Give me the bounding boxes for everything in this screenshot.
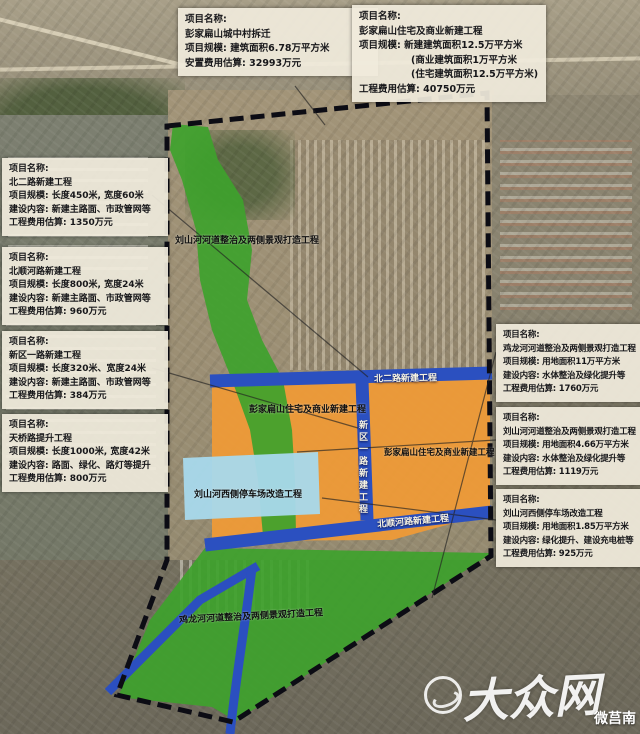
- map-label-xinquyilu-road: 新区一路新建工程: [356, 420, 369, 516]
- info-line: 项目名称:: [503, 494, 640, 508]
- info-box-jilonghe: 项目名称: 鸡龙河河道整治及两侧景观打造工程 项目规模: 用地面积11万平方米 …: [496, 324, 640, 402]
- map-label-parking: 刘山河西侧停车场改造工程: [194, 487, 302, 500]
- info-line: 项目规模: 长度1000米, 宽度42米: [9, 446, 161, 460]
- info-line: 工程费用估算: 40750万元: [359, 83, 539, 98]
- info-line: 建设内容: 水体整治及绿化提升等: [503, 370, 640, 384]
- info-line: 安置费用估算: 32993万元: [185, 57, 371, 72]
- map-label-orange-left: 彭家扁山住宅及商业新建工程: [249, 402, 366, 415]
- info-line: 北顺河路新建工程: [9, 266, 161, 280]
- blue-road-beierlu: [210, 373, 492, 381]
- planning-map-image: 项目名称: 彭家扁山城中村拆迁 项目规模: 建筑面积6.78万平方米 安置费用估…: [0, 0, 640, 734]
- map-label-beierlu-road: 北二路新建工程: [374, 370, 437, 384]
- watermark-logo-text: 大众网: [460, 658, 601, 731]
- info-box-xinquyilu: 项目名称: 新区一路新建工程 项目规模: 长度320米、宽度24米 建设内容: …: [2, 331, 168, 409]
- info-box-demolition: 项目名称: 彭家扁山城中村拆迁 项目规模: 建筑面积6.78万平方米 安置费用估…: [178, 8, 378, 76]
- info-line: 项目规模: 长度800米, 宽度24米: [9, 279, 161, 293]
- watermark-account-name: 微莒南: [594, 708, 636, 728]
- map-label-liushanhe-corridor: 刘山河河道整治及两侧景观打造工程: [175, 233, 319, 246]
- info-line: 工程费用估算: 925万元: [503, 548, 640, 562]
- info-box-newbuild: 项目名称: 彭家扁山住宅及商业新建工程 项目规模: 新建建筑面积12.5万平方米…: [352, 5, 546, 102]
- info-line: 工程费用估算: 800万元: [9, 473, 161, 487]
- info-box-liushanhe: 项目名称: 刘山河河道整治及两侧景观打造工程 项目规模: 用地面积4.66万平方…: [496, 407, 640, 485]
- info-line: 工程费用估算: 1760万元: [503, 383, 640, 397]
- info-line: 工程费用估算: 1119万元: [503, 466, 640, 480]
- map-label-orange-right: 彭家扁山住宅及商业新建工程: [384, 446, 495, 458]
- info-line: (商业建筑面积1万平方米: [359, 54, 539, 69]
- info-line: 项目规模: 用地面积11万平方米: [503, 356, 640, 370]
- info-line: 北二路新建工程: [9, 177, 161, 191]
- info-line: 工程费用估算: 384万元: [9, 390, 161, 404]
- info-box-parking: 项目名称: 刘山河西侧停车场改造工程 项目规模: 用地面积1.85万平方米 建设…: [496, 489, 640, 567]
- info-line: 鸡龙河河道整治及两侧景观打造工程: [503, 343, 640, 357]
- info-line: 建设内容: 新建主路面、市政管网等: [9, 377, 161, 391]
- info-line: 项目规模: 长度450米, 宽度60米: [9, 190, 161, 204]
- info-line: 建设内容: 路面、绿化、路灯等提升: [9, 460, 161, 474]
- info-line: 项目规模: 用地面积1.85万平方米: [503, 521, 640, 535]
- info-line: 项目名称:: [9, 419, 161, 433]
- info-line: 项目规模: 长度320米、宽度24米: [9, 363, 161, 377]
- info-line: 刘山河河道整治及两侧景观打造工程: [503, 426, 640, 440]
- info-line: 项目名称:: [503, 329, 640, 343]
- info-line: 建设内容: 新建主路面、市政管网等: [9, 293, 161, 307]
- info-line: 工程费用估算: 960万元: [9, 306, 161, 320]
- info-line: 建设内容: 新建主路面、市政管网等: [9, 204, 161, 218]
- info-line: 工程费用估算: 1350万元: [9, 217, 161, 231]
- info-line: 项目名称:: [185, 13, 371, 28]
- info-box-beishunhelu: 项目名称: 北顺河路新建工程 项目规模: 长度800米, 宽度24米 建设内容:…: [2, 247, 168, 325]
- info-box-beierlu: 项目名称: 北二路新建工程 项目规模: 长度450米, 宽度60米 建设内容: …: [2, 158, 168, 236]
- info-line: 建设内容: 绿化提升、建设充电桩等: [503, 535, 640, 549]
- info-line: 项目规模: 用地面积4.66万平方米: [503, 439, 640, 453]
- info-line: 项目名称:: [359, 10, 539, 25]
- info-line: 项目名称:: [9, 252, 161, 266]
- info-line: (住宅建筑面积12.5万平方米): [359, 68, 539, 83]
- watermark-logo-icon: [424, 676, 462, 714]
- info-line: 彭家扁山住宅及商业新建工程: [359, 25, 539, 40]
- info-line: 项目名称:: [503, 412, 640, 426]
- info-line: 项目规模: 新建建筑面积12.5万平方米: [359, 39, 539, 54]
- info-line: 彭家扁山城中村拆迁: [185, 28, 371, 43]
- cyan-parking-area: [183, 452, 320, 520]
- info-line: 建设内容: 水体整治及绿化提升等: [503, 453, 640, 467]
- info-line: 项目名称:: [9, 336, 161, 350]
- info-line: 刘山河西侧停车场改造工程: [503, 508, 640, 522]
- info-box-tianqiaolu: 项目名称: 天桥路提升工程 项目规模: 长度1000米, 宽度42米 建设内容:…: [2, 414, 168, 492]
- info-line: 新区一路新建工程: [9, 350, 161, 364]
- info-line: 项目规模: 建筑面积6.78万平方米: [185, 42, 371, 57]
- info-line: 项目名称:: [9, 163, 161, 177]
- info-line: 天桥路提升工程: [9, 433, 161, 447]
